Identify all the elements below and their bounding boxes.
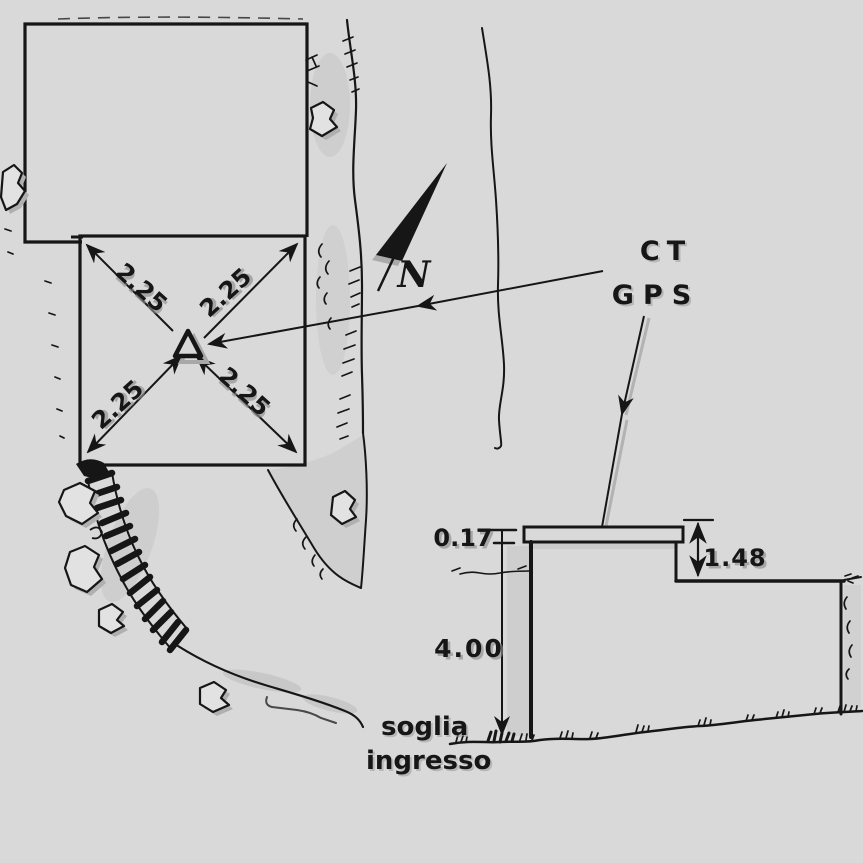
diagonal-dimension-label: 2.25: [86, 375, 149, 435]
leader-gps-segment-2: [602, 414, 622, 527]
veg-road-mid-1: [349, 267, 360, 307]
station-marker: [175, 331, 207, 362]
large-building-outline: [25, 24, 307, 242]
left-wall-shadow: [507, 546, 529, 736]
height-dimension-label: 4.00: [434, 634, 504, 663]
rock-small-mark: [90, 527, 102, 538]
labels: 2.25 2.25 2.25 2.25 N CT GPS 0.17 4.00 1…: [86, 236, 766, 776]
north-label: N: [397, 254, 433, 296]
survey-sketch: 2.25 2.25 2.25 2.25 N CT GPS 0.17 4.00 1…: [0, 0, 863, 863]
road-edge-left: [347, 20, 363, 433]
diagonal-dimension-label: 2.25: [213, 362, 276, 422]
diagonal-dimension-label: 2.25: [110, 258, 173, 318]
leader-ct-segment-2: [209, 306, 418, 344]
leader-gps-shadow-1: [626, 318, 649, 415]
threshold-label-line1: soglia: [381, 712, 468, 742]
boundary-dashes: [5, 229, 64, 438]
threshold-label-line2: ingresso: [366, 746, 491, 776]
ct-label: CT: [640, 236, 692, 267]
right-wall-shadow: [844, 585, 861, 707]
slab-underside-shadow: [528, 543, 678, 549]
large-building-top-stray-line: [58, 17, 303, 19]
shade-road-mid: [316, 225, 350, 375]
survey-sketch-page: 2.25 2.25 2.25 2.25 N CT GPS 0.17 4.00 1…: [0, 0, 863, 863]
roof-slab: [524, 527, 683, 542]
leader-ct-segment-1: [418, 271, 603, 306]
leader-gps-shadow-2: [606, 420, 627, 526]
step-dimension-label: 1.48: [703, 544, 766, 572]
north-arrow-icon: [376, 163, 447, 261]
slab-thickness-label: 0.17: [433, 524, 492, 552]
gps-label: GPS: [612, 280, 700, 311]
leader-gps-segment-1: [622, 316, 644, 414]
veg-road-low: [337, 395, 350, 439]
cross-section: [450, 520, 862, 744]
leader-lines: [209, 271, 649, 527]
road-edge-right: [482, 28, 504, 449]
